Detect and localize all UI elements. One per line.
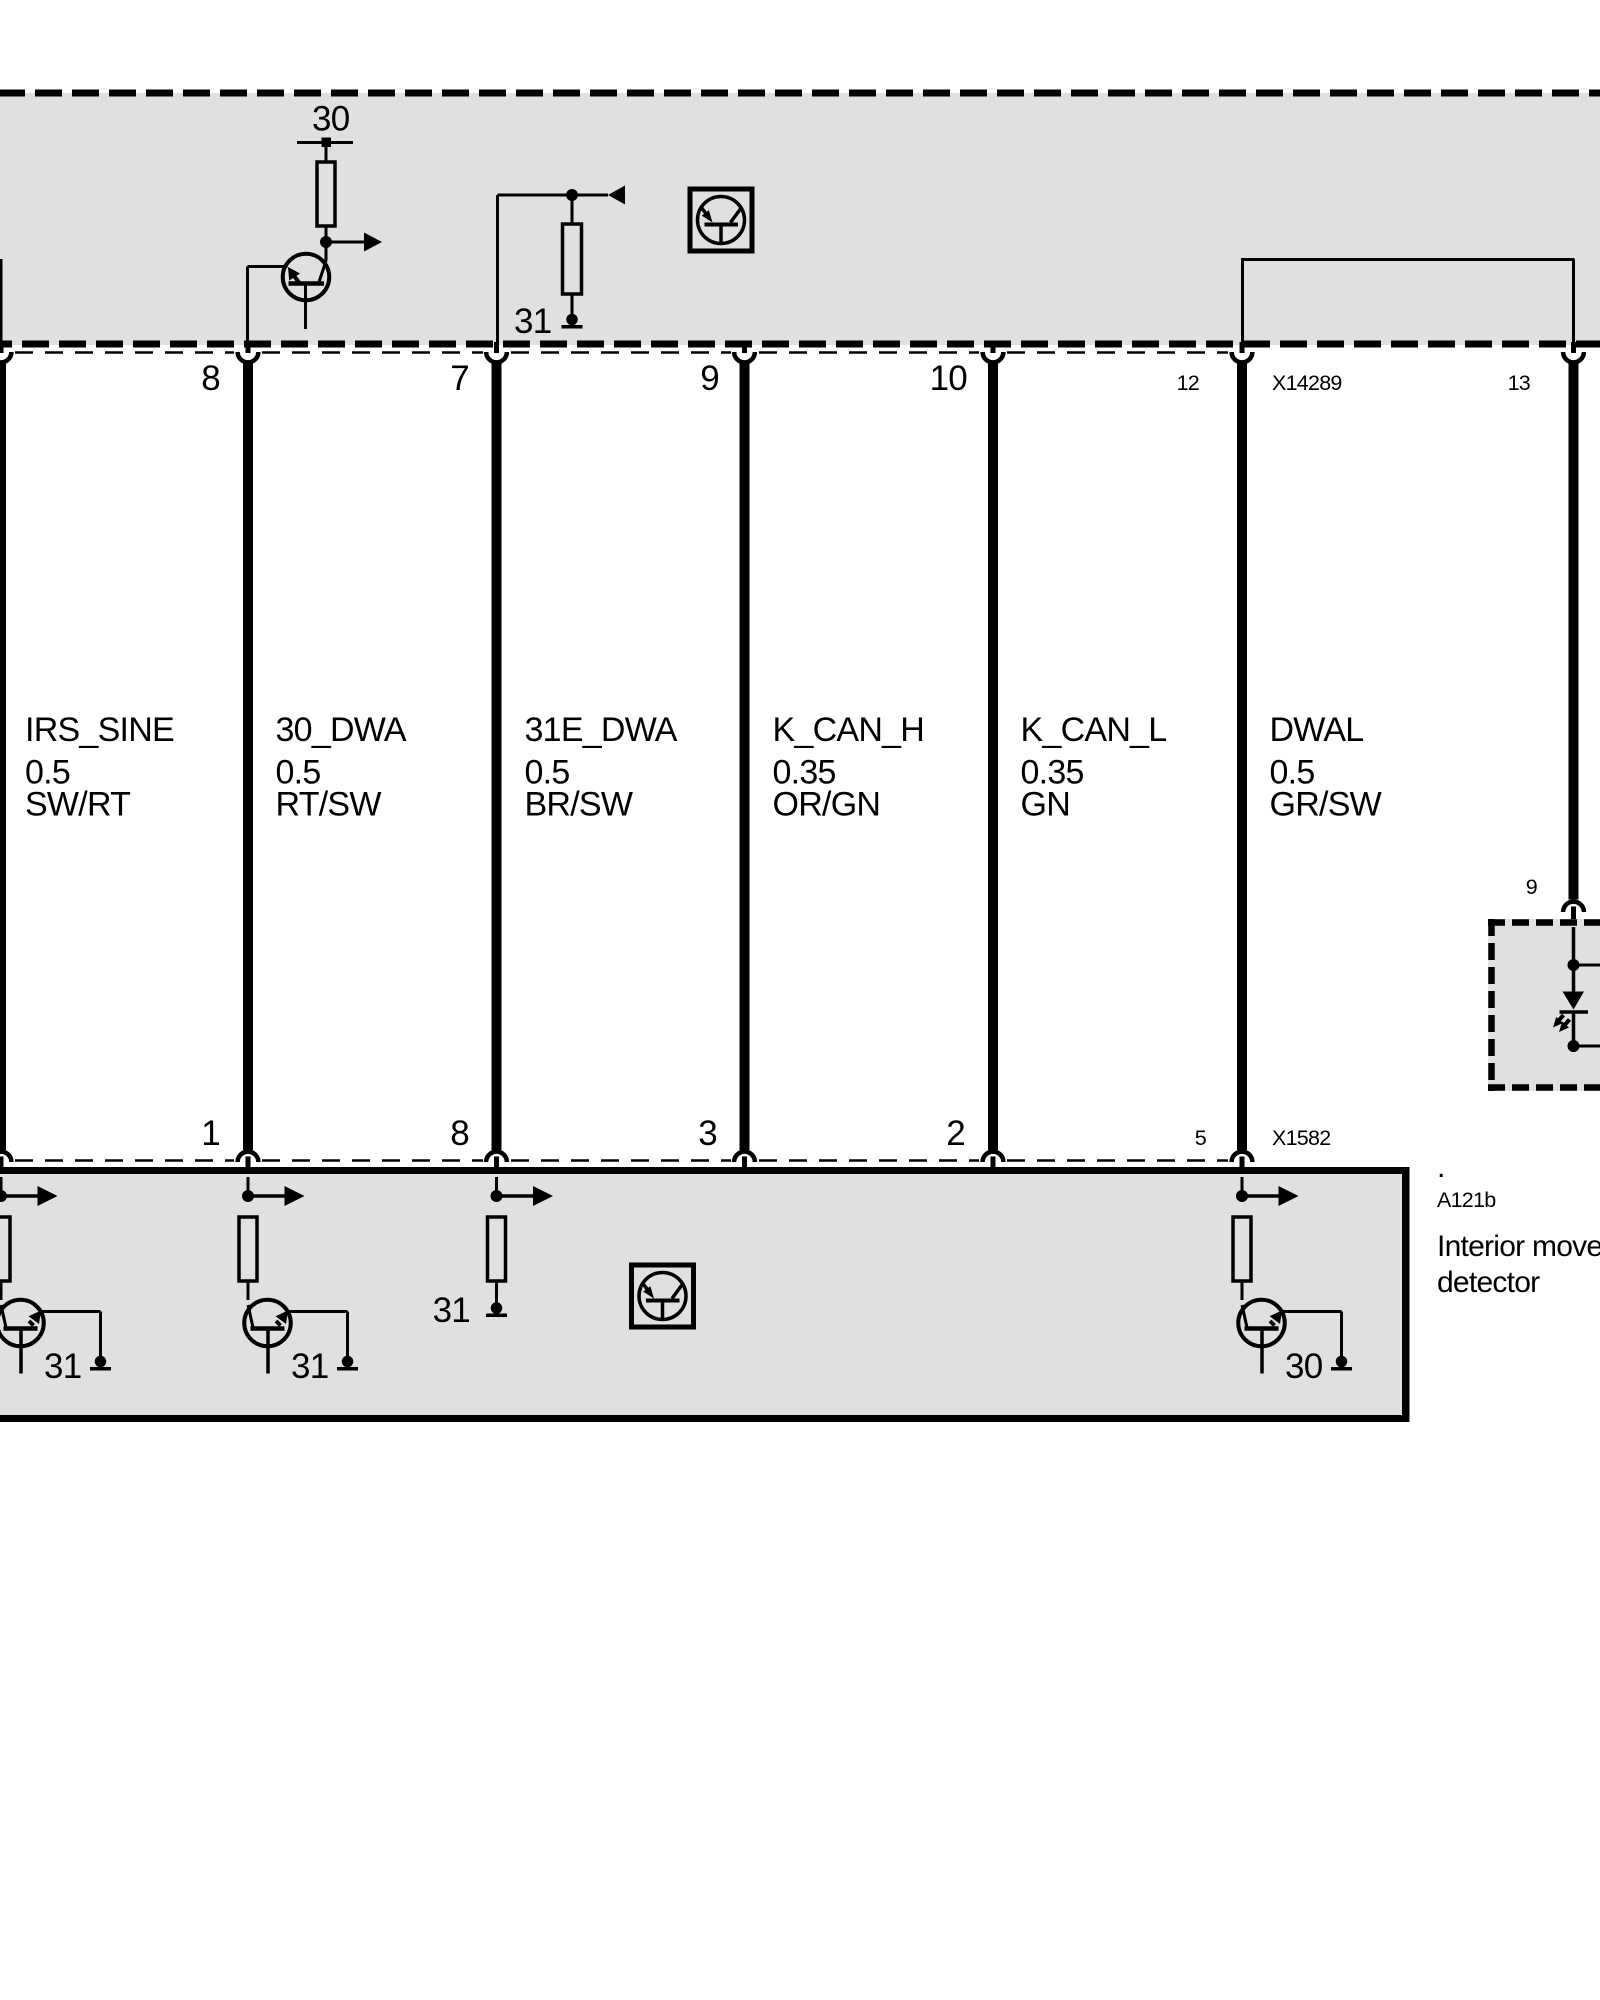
svg-text:8: 8	[201, 359, 220, 398]
svg-text:2: 2	[946, 1114, 965, 1153]
svg-text:3: 3	[698, 1114, 717, 1153]
svg-text:13: 13	[1508, 371, 1531, 395]
svg-text:X1582: X1582	[1272, 1126, 1330, 1150]
svg-text:K_CAN_L: K_CAN_L	[1021, 711, 1167, 749]
svg-text:Interior movement: Interior movement	[1437, 1230, 1600, 1263]
svg-text:OR/GN: OR/GN	[773, 786, 881, 824]
svg-text:X14289: X14289	[1272, 371, 1342, 395]
svg-text:A121b: A121b	[1437, 1188, 1496, 1212]
svg-text:30: 30	[312, 100, 350, 139]
svg-text:9: 9	[1526, 875, 1537, 899]
svg-text:31: 31	[433, 1291, 470, 1330]
svg-text:31: 31	[44, 1347, 81, 1386]
svg-text:31: 31	[514, 302, 551, 341]
svg-text:31: 31	[291, 1347, 328, 1386]
svg-text:10: 10	[930, 359, 968, 398]
svg-text:5: 5	[1195, 1126, 1207, 1150]
svg-text:RT/SW: RT/SW	[276, 786, 382, 824]
svg-text:SW/RT: SW/RT	[25, 786, 130, 824]
svg-text:GN: GN	[1021, 786, 1071, 824]
svg-text:DWAL: DWAL	[1270, 711, 1364, 749]
svg-text:1: 1	[201, 1114, 220, 1153]
svg-text:K_CAN_H: K_CAN_H	[773, 711, 925, 749]
svg-text:.: .	[1437, 1151, 1445, 1184]
svg-text:30: 30	[1285, 1347, 1323, 1386]
svg-text:31E_DWA: 31E_DWA	[525, 711, 678, 749]
svg-text:GR/SW: GR/SW	[1270, 786, 1382, 824]
svg-text:IRS_SINE: IRS_SINE	[25, 711, 174, 749]
svg-text:9: 9	[700, 359, 719, 398]
svg-text:12: 12	[1177, 371, 1199, 395]
svg-text:7: 7	[450, 359, 469, 398]
svg-text:8: 8	[450, 1114, 469, 1153]
svg-text:30_DWA: 30_DWA	[276, 711, 407, 749]
svg-text:BR/SW: BR/SW	[525, 786, 633, 824]
svg-text:detector: detector	[1437, 1266, 1540, 1299]
